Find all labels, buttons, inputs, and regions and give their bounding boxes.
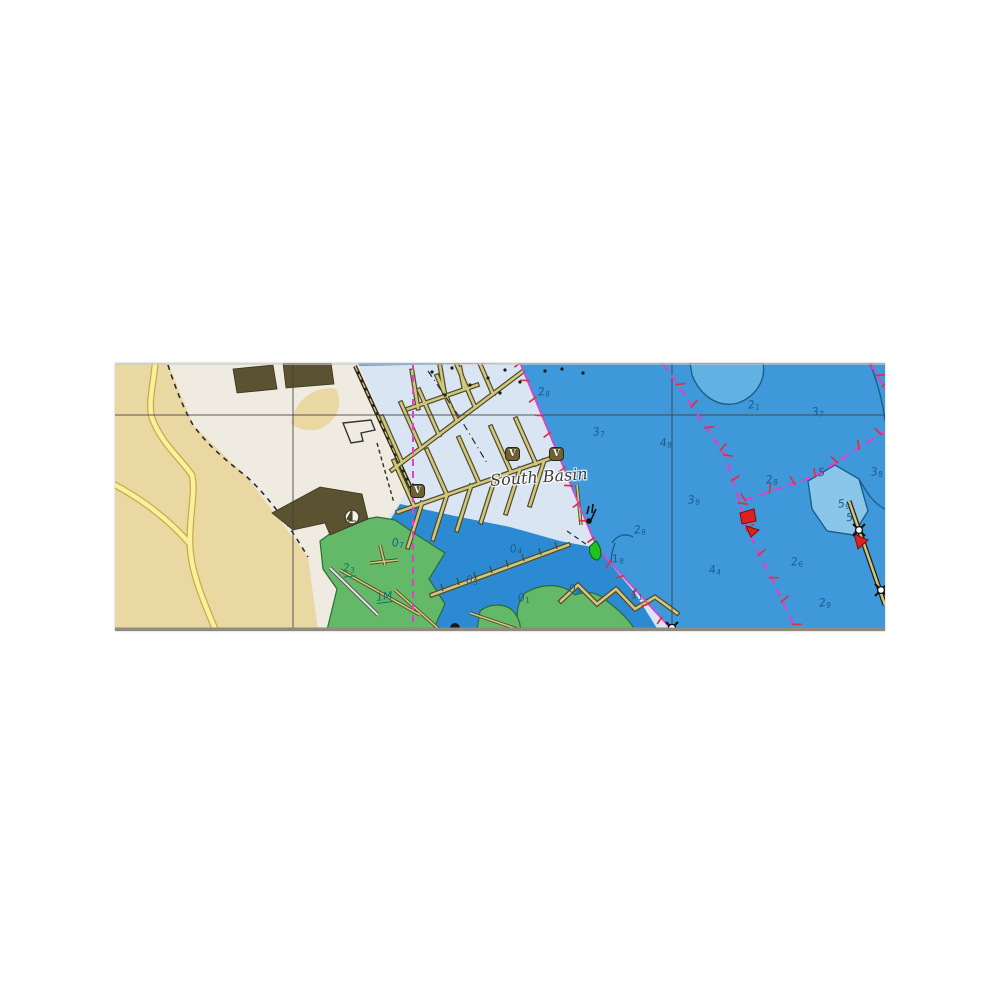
- sounding: 1M: [375, 590, 393, 604]
- sounding: 28: [633, 523, 646, 538]
- sounding: 29: [818, 596, 831, 611]
- top-edge-strip: [115, 363, 885, 365]
- sounding: 23: [342, 561, 356, 577]
- sounding: 38: [687, 493, 700, 508]
- sounding: 37: [592, 425, 605, 440]
- sounding: 05: [465, 573, 478, 588]
- screenshot-page: 2837482137382855938281811442629504050407…: [0, 0, 1000, 1000]
- bottom-edge-strip: [115, 628, 885, 632]
- sounding: 26: [790, 555, 803, 570]
- sounding: 37: [811, 405, 824, 420]
- yacht-harbor-icon: [345, 510, 359, 524]
- sounding: 28: [765, 473, 778, 488]
- sounding: 01: [517, 591, 530, 606]
- marina-badge-v: V: [549, 447, 564, 461]
- sounding: 28: [537, 385, 550, 400]
- sounding: 5: [845, 512, 853, 524]
- sounding: 11: [630, 588, 643, 603]
- sounding: 07: [391, 536, 404, 551]
- sounding: 04: [568, 582, 581, 597]
- chart-canvas: [115, 363, 885, 631]
- sounding: 18: [611, 552, 624, 567]
- marina-badge-v: V: [505, 447, 520, 461]
- sounding: 48: [659, 436, 672, 451]
- sounding: 44: [708, 563, 721, 578]
- sounding: 38: [870, 465, 883, 480]
- marina-badge-v: V: [410, 484, 425, 498]
- sounding: 5: [817, 467, 825, 479]
- nautical-chart-region: 2837482137382855938281811442629504050407…: [115, 363, 885, 631]
- sounding: 21: [747, 398, 760, 413]
- sounding: 04: [509, 542, 522, 557]
